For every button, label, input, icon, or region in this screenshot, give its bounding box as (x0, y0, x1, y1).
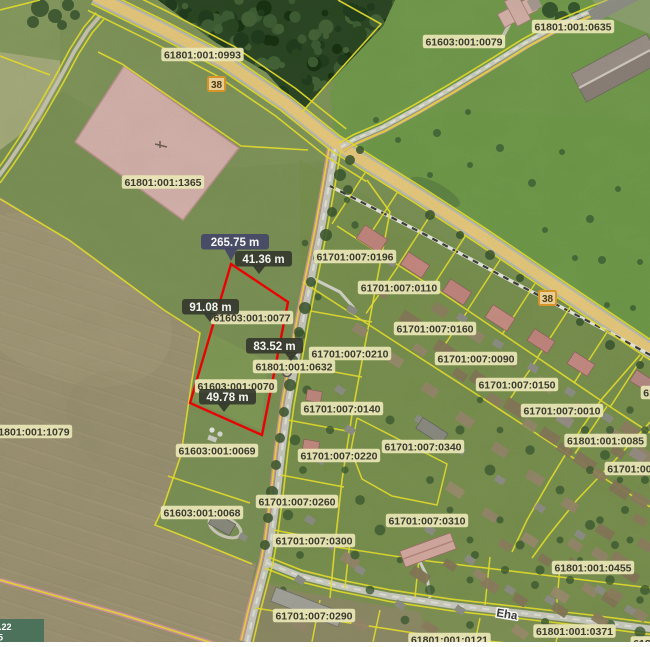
svg-text:35: 35 (0, 633, 3, 643)
svg-text:1.22: 1.22 (0, 622, 12, 632)
